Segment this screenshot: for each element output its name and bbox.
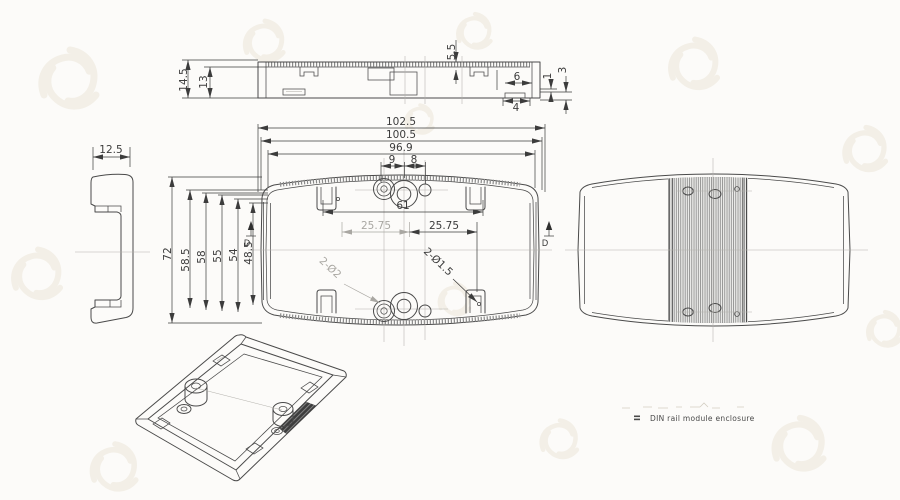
- top-section-dimensions: 14.5 13 5.5 6 4 1 3: [178, 40, 572, 114]
- dim-102-5: 102.5: [386, 116, 416, 128]
- front-view-dimensions: 102.5 100.5 96.9 9 8 61 25.75 25.75 2-Ø2: [162, 116, 545, 323]
- dim-3: 3: [557, 67, 569, 74]
- dim-58-5: 58.5: [180, 248, 192, 271]
- hole-note-2x1-5: 2-Ø1.5: [421, 246, 455, 279]
- top-section-view: [258, 56, 540, 104]
- front-view: D D: [244, 150, 554, 346]
- dim-100-5: 100.5: [386, 129, 416, 141]
- caption-block: DIN rail module enclosure: [622, 403, 755, 423]
- dim-5-5: 5.5: [446, 44, 458, 61]
- right-view: [565, 158, 868, 342]
- section-marker-right: D: [542, 221, 554, 249]
- dim-48-5: 48.5: [243, 241, 255, 264]
- dim-8: 8: [411, 154, 418, 166]
- revision-mark-icon: [634, 416, 640, 421]
- dim-4: 4: [513, 102, 520, 114]
- hole-note-2x2: 2-Ø2: [317, 255, 344, 281]
- dim-72: 72: [162, 247, 174, 260]
- dim-54: 54: [228, 248, 240, 262]
- dim-6: 6: [514, 71, 521, 83]
- dim-61: 61: [396, 200, 409, 212]
- side-view: 12.5: [75, 144, 150, 323]
- dim-25-75-right: 25.75: [429, 220, 459, 232]
- watermark-pattern: [6, 13, 900, 496]
- dim-14-5: 14.5: [178, 68, 190, 91]
- dim-25-75-left: 25.75: [361, 220, 391, 232]
- dim-1: 1: [542, 73, 554, 80]
- cad-drawing: 14.5 13 5.5 6 4 1 3 12.5: [0, 0, 900, 500]
- dim-9: 9: [389, 154, 396, 166]
- dim-55: 55: [212, 249, 224, 262]
- dim-13: 13: [198, 75, 210, 88]
- drawing-title: DIN rail module enclosure: [650, 414, 755, 423]
- section-label-right: D: [542, 239, 549, 249]
- dim-96-9: 96.9: [389, 142, 412, 154]
- dim-12-5: 12.5: [99, 144, 122, 156]
- faded-text-line: [622, 403, 744, 408]
- drawing-canvas: 14.5 13 5.5 6 4 1 3 12.5: [0, 0, 900, 500]
- dim-58: 58: [196, 250, 208, 263]
- isometric-view: [136, 335, 347, 481]
